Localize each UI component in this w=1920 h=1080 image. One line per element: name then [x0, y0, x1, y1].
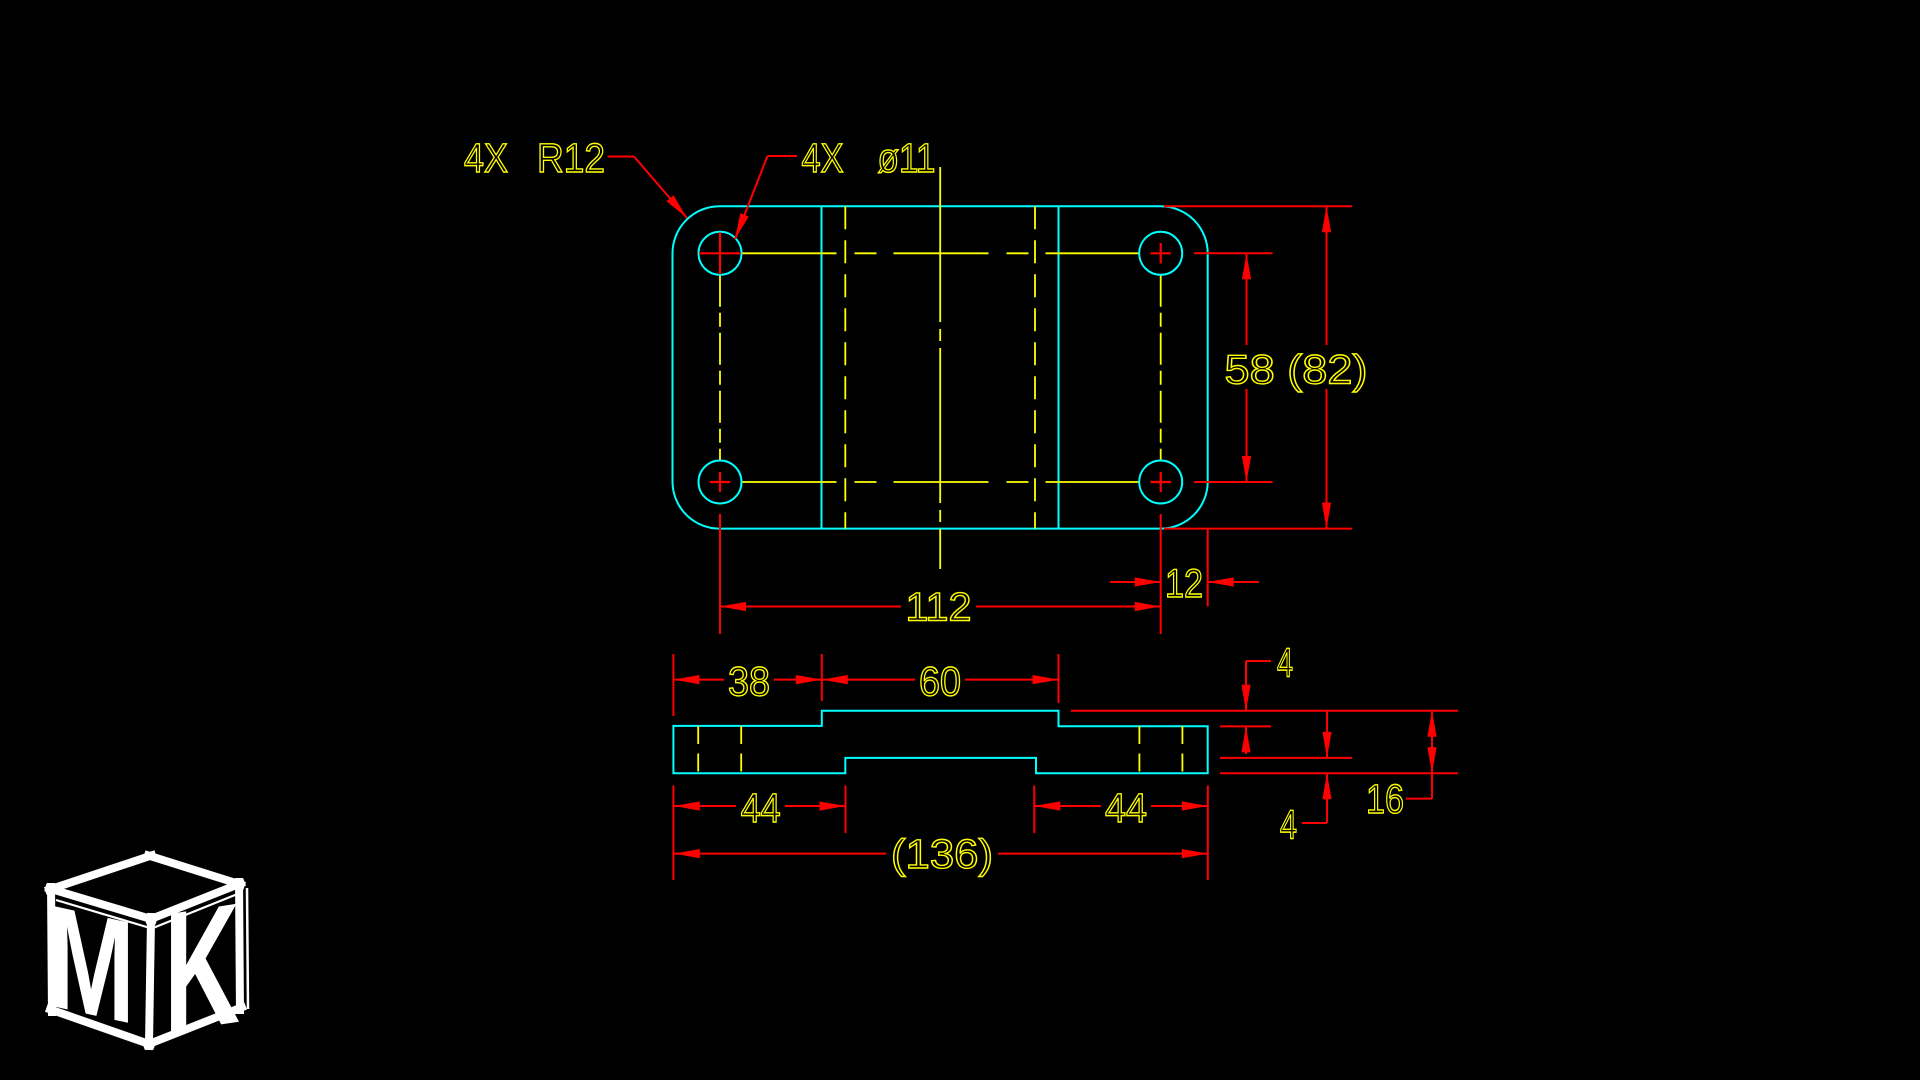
- svg-text:16: 16: [1366, 776, 1404, 822]
- svg-text:4: 4: [1277, 640, 1293, 686]
- svg-text:44: 44: [741, 785, 781, 831]
- svg-text:112: 112: [906, 586, 972, 630]
- svg-text:ø11: ø11: [878, 135, 936, 181]
- svg-text:4X: 4X: [802, 135, 844, 181]
- svg-text:M: M: [47, 874, 135, 1056]
- svg-text:4X: 4X: [464, 135, 508, 181]
- svg-text:58 (82): 58 (82): [1225, 347, 1368, 393]
- svg-text:38: 38: [728, 659, 770, 705]
- svg-text:44: 44: [1105, 785, 1147, 831]
- svg-text:(136): (136): [891, 831, 993, 877]
- svg-text:K: K: [164, 865, 240, 1069]
- svg-text:60: 60: [919, 659, 961, 705]
- svg-text:12: 12: [1165, 562, 1203, 606]
- svg-text:R12: R12: [537, 135, 605, 181]
- svg-text:4: 4: [1280, 802, 1297, 848]
